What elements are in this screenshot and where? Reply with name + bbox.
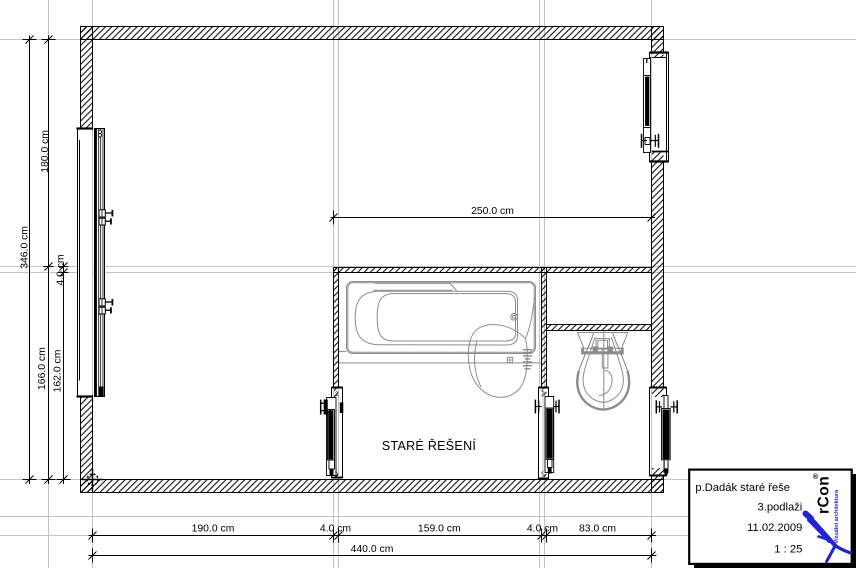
svg-text:440.0 cm: 440.0 cm (351, 544, 394, 555)
svg-text:346.0 cm: 346.0 cm (20, 226, 31, 269)
svg-text:162.0 cm: 162.0 cm (53, 350, 64, 393)
svg-text:STARÉ ŘEŠENÍ: STARÉ ŘEŠENÍ (382, 438, 477, 453)
svg-text:1 : 25: 1 : 25 (774, 544, 802, 556)
svg-text:4.0 cm: 4.0 cm (55, 254, 66, 285)
svg-text:166.0 cm: 166.0 cm (37, 347, 48, 390)
svg-text:Vizuální architektura: Vizuální architektura (834, 489, 840, 544)
svg-text:180.0 cm: 180.0 cm (40, 130, 51, 173)
svg-text:159.0 cm: 159.0 cm (418, 524, 461, 535)
svg-text:rCon: rCon (816, 476, 833, 514)
svg-text:4.0 cm: 4.0 cm (320, 524, 351, 535)
svg-text:11.02.2009: 11.02.2009 (747, 522, 802, 534)
svg-text:p.Dadák staré řeše: p.Dadák staré řeše (695, 482, 790, 494)
svg-text:83.0 cm: 83.0 cm (579, 524, 616, 535)
svg-text:3.podlaži: 3.podlaži (758, 501, 803, 513)
svg-text:250.0 cm: 250.0 cm (471, 206, 514, 217)
svg-text:190.0 cm: 190.0 cm (192, 524, 235, 535)
svg-text:4.0 cm: 4.0 cm (527, 524, 558, 535)
